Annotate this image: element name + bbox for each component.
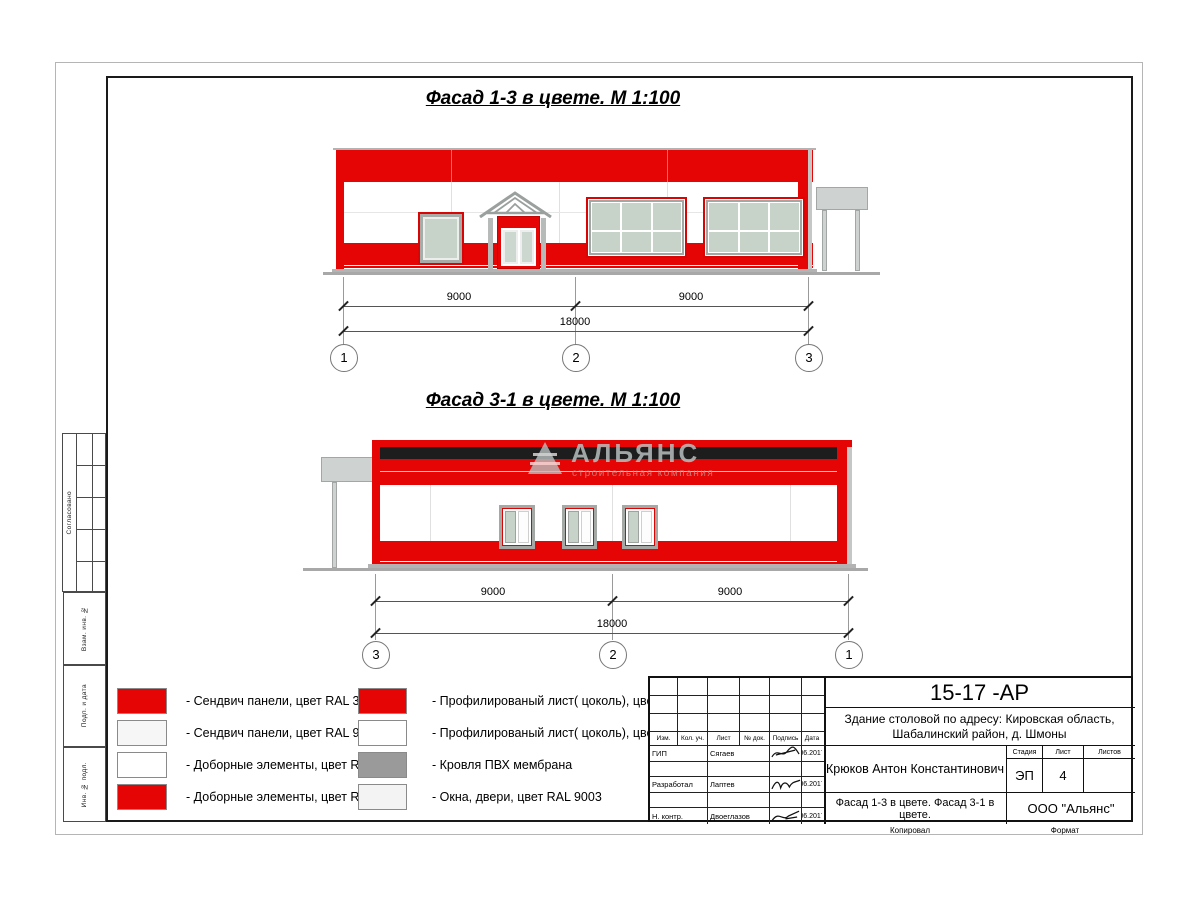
extension-line [343,277,344,345]
facade2-right-edge [847,447,852,564]
facade1-large-window-1 [586,197,687,258]
facade2-building [372,440,852,568]
stamp-label-podp: Подп. и дата [81,684,88,727]
door-leaf [503,230,518,264]
listov-header: Листов [1084,746,1135,759]
legend-label: - Кровля ПВХ мембрана [432,758,572,772]
axis-marker-2b: 2 [599,641,627,669]
facade2-bottom-red-band [372,541,852,561]
legend-swatch [117,688,167,714]
axis-marker-2: 2 [562,344,590,372]
stage-value: ЭП [1007,759,1043,793]
project-line1: Здание столовой по адресу: Кировская обл… [844,712,1114,727]
facade-1-3-drawing [335,145,890,279]
facade1-canopy-leg [855,210,860,271]
approval-grid-line [77,465,105,466]
name: Сягаев [708,746,770,761]
signature-row-developer: Разработал Лаптев 06.2017 [650,777,824,793]
window-glazing [709,203,799,252]
format-label: Формат [1020,826,1110,835]
date: 06.2017 [802,808,822,824]
axis-marker-1: 1 [330,344,358,372]
facade1-canopy-roof [816,187,868,210]
panel-joint [790,485,791,541]
col-izm: Изм. [650,732,678,745]
facade1-title: Фасад 1-3 в цвете. М 1:100 [353,88,753,110]
window-glass [628,511,639,543]
stamp-cell-podp: Подп. и дата [63,665,106,747]
facade2-canopy-roof [321,457,373,482]
date: 06.2017 [802,746,822,761]
legend-swatch [117,752,167,778]
facade1-canopy-leg [822,210,827,271]
legend-swatch [358,784,407,810]
facade2-canopy-leg [332,482,337,568]
approval-grid-line [77,497,105,498]
porch-post-right [541,218,546,269]
facade2-top-red-strip [372,440,852,447]
facade1-top-red-band [336,150,813,182]
project-line2: Шабалинский район, д. Шмоны [892,727,1066,742]
legend-swatch [358,720,407,746]
extension-line [575,277,576,345]
signature-row-ncontrol: Н. контр. Двоеглазов 06.2017 [650,808,824,824]
legend-swatch [358,688,407,714]
facade2-title: Фасад 3-1 в цвете. М 1:100 [353,390,753,412]
approval-grid-line [92,434,93,591]
door-leaf [520,230,535,264]
facade2-window-3 [622,505,658,549]
facade2-ground-line [303,568,868,571]
col-kol: Кол. уч. [678,732,708,745]
approval-label-cell: Согласовано [63,434,77,591]
signature [770,777,802,792]
facade2-window-2 [562,505,597,549]
facade-3-1-drawing [318,437,866,574]
facade1-right-edge [808,150,812,269]
list-header: Лист [1043,746,1084,759]
stamp-cell-inv: Инв. № подл. [63,747,106,822]
date: 06.2017 [802,777,822,792]
window-glass [568,511,579,543]
sheet-name: Фасад 1-3 в цвете. Фасад 3-1 в цвете. [824,793,1007,824]
legend-swatch [117,720,167,746]
legend-label: - Сендвич панели, цвет RAL 9003 [186,726,380,740]
dim-label: 9000 [481,586,505,598]
window-glass [423,217,459,260]
extension-line [808,277,809,345]
signature [770,746,802,761]
legend-label: - Сендвич панели, цвет RAL 3020 [186,694,380,708]
facade2-window-1 [499,505,535,549]
extension-line [612,574,613,640]
project-name: Здание столовой по адресу: Кировская обл… [824,708,1135,746]
panel-joint [451,150,452,182]
facade1-plinth-line [336,266,813,268]
door-leaves [501,228,536,266]
window-leaf [641,511,652,543]
signature [770,808,802,824]
approval-label: Согласовано [66,491,73,534]
copied-label: Копировал [860,826,960,835]
stamp-label-vzam: Взам. инв. № [81,606,88,651]
titleblock-signature-table: Изм. Кол. уч. Лист № док. Подпись Дата Г… [650,678,826,824]
panel-joint [430,485,431,541]
document-code: 15-17 -АР [824,678,1135,708]
role: Разработал [650,777,708,792]
col-ndok: № док. [740,732,770,745]
approval-table: Согласовано [62,433,106,592]
legend-swatch [358,752,407,778]
porch-post-left [488,218,493,269]
author-name: Крюков Антон Константинович [824,746,1007,793]
facade2-membrane-roof-band [372,447,852,459]
dimension-line [343,331,808,332]
window-glass [505,511,516,543]
facade1-ground-line [323,272,880,275]
axis-marker-1b: 1 [835,641,863,669]
role: Н. контр. [650,808,708,824]
stamp-cell-vzam: Взам. инв. № [63,592,106,665]
facade2-top-red-band [372,459,852,485]
facade2-right-corner-trim [837,447,847,564]
dimension-line [375,633,848,634]
facade1-small-window [418,212,464,265]
axis-marker-3: 3 [795,344,823,372]
porch-gable-truss [478,190,553,218]
sheet-number: 4 [1043,759,1084,793]
panel-joint [612,485,613,541]
window-glazing [592,203,681,252]
window-leaf [518,511,529,543]
name: Лаптев [708,777,770,792]
facade1-left-corner-trim [336,150,344,269]
dim-label: 9000 [718,586,742,598]
approval-grid-line [77,529,105,530]
title-block: Изм. Кол. уч. Лист № док. Подпись Дата Г… [648,676,1133,822]
titleblock-header-row: Изм. Кол. уч. Лист № док. Подпись Дата [650,732,824,746]
dim-label: 9000 [679,291,703,303]
legend-swatch [117,784,167,810]
drawing-sheet: Согласовано Взам. инв. № Подп. и дата Ин… [0,0,1200,900]
dim-label: 18000 [560,316,591,328]
panel-joint [667,150,668,182]
dim-label: 9000 [447,291,471,303]
stage-header: Стадия [1007,746,1043,759]
company-name: ООО "Альянс" [1007,793,1135,824]
window-leaf [581,511,591,543]
signature-row-gip: ГИП Сягаев 06.2017 [650,746,824,762]
facade1-large-window-2 [703,197,805,258]
dim-label: 18000 [597,618,628,630]
name: Двоеглазов [708,808,770,824]
facade2-band-seam [372,471,852,472]
col-list: Лист [708,732,740,745]
sheets-total [1084,759,1135,793]
col-podpis: Подпись [770,732,802,745]
col-data: Дата [802,732,822,745]
facade1-building [336,148,813,272]
legend-label: - Окна, двери, цвет RAL 9003 [432,790,602,804]
role: ГИП [650,746,708,761]
facade1-entrance-door [497,216,540,269]
stamp-label-inv: Инв. № подл. [81,762,88,807]
approval-grid-line [77,561,105,562]
facade2-left-corner-trim [372,447,380,564]
axis-marker-3b: 3 [362,641,390,669]
